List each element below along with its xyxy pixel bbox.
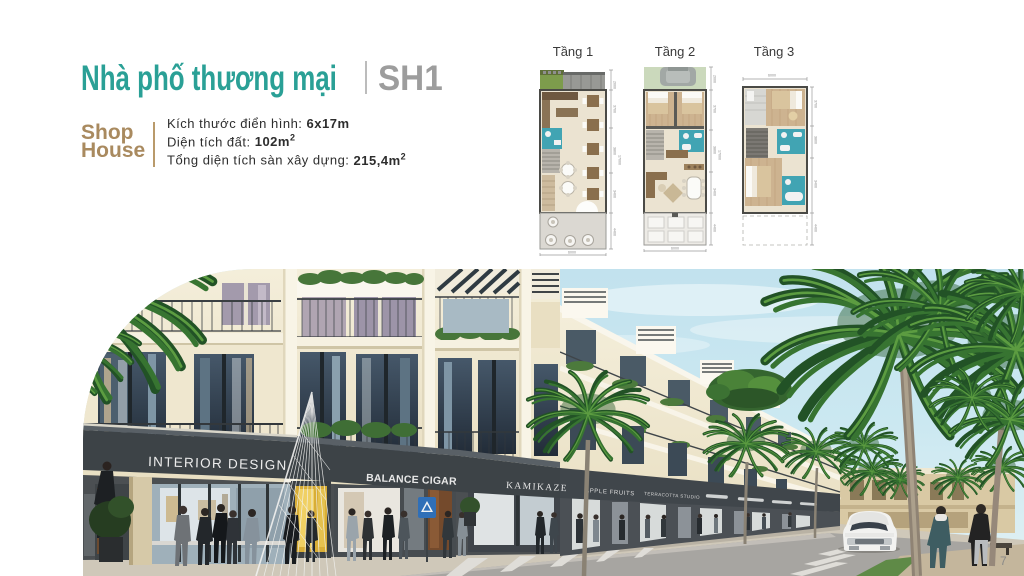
svg-text:3800: 3800 (713, 146, 717, 154)
svg-text:6000: 6000 (671, 246, 679, 250)
svg-text:3700: 3700 (814, 100, 818, 108)
svg-text:7: 7 (1000, 554, 1007, 568)
svg-text:4400: 4400 (713, 224, 717, 232)
svg-text:3700: 3700 (613, 105, 617, 113)
svg-text:6000: 6000 (568, 250, 576, 254)
svg-text:17000: 17000 (718, 150, 722, 160)
svg-text:4400: 4400 (814, 224, 818, 232)
svg-text:3700: 3700 (713, 105, 717, 113)
svg-text:4400: 4400 (613, 228, 617, 236)
svg-text:3800: 3800 (613, 147, 617, 155)
svg-text:3400: 3400 (713, 188, 717, 196)
svg-text:2000: 2000 (713, 75, 717, 83)
svg-text:3400: 3400 (613, 190, 617, 198)
svg-text:3400: 3400 (814, 180, 818, 188)
svg-text:17000: 17000 (618, 155, 622, 165)
svg-text:6000: 6000 (768, 73, 776, 77)
svg-text:3800: 3800 (814, 136, 818, 144)
svg-text:2000: 2000 (613, 81, 617, 89)
